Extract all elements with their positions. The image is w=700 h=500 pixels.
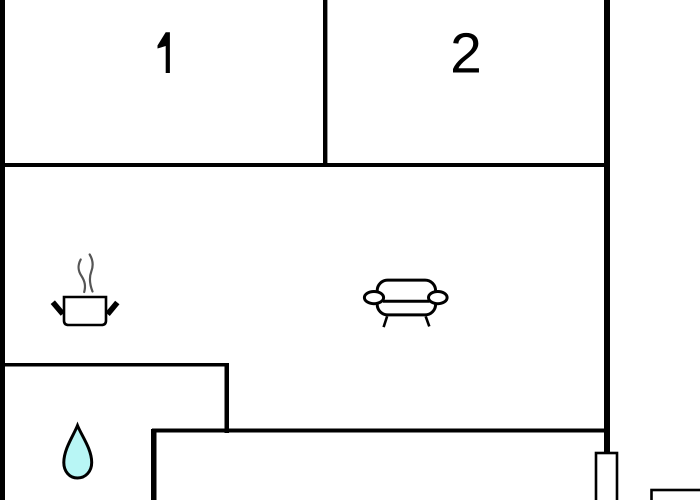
svg-text:2: 2 bbox=[450, 22, 482, 86]
